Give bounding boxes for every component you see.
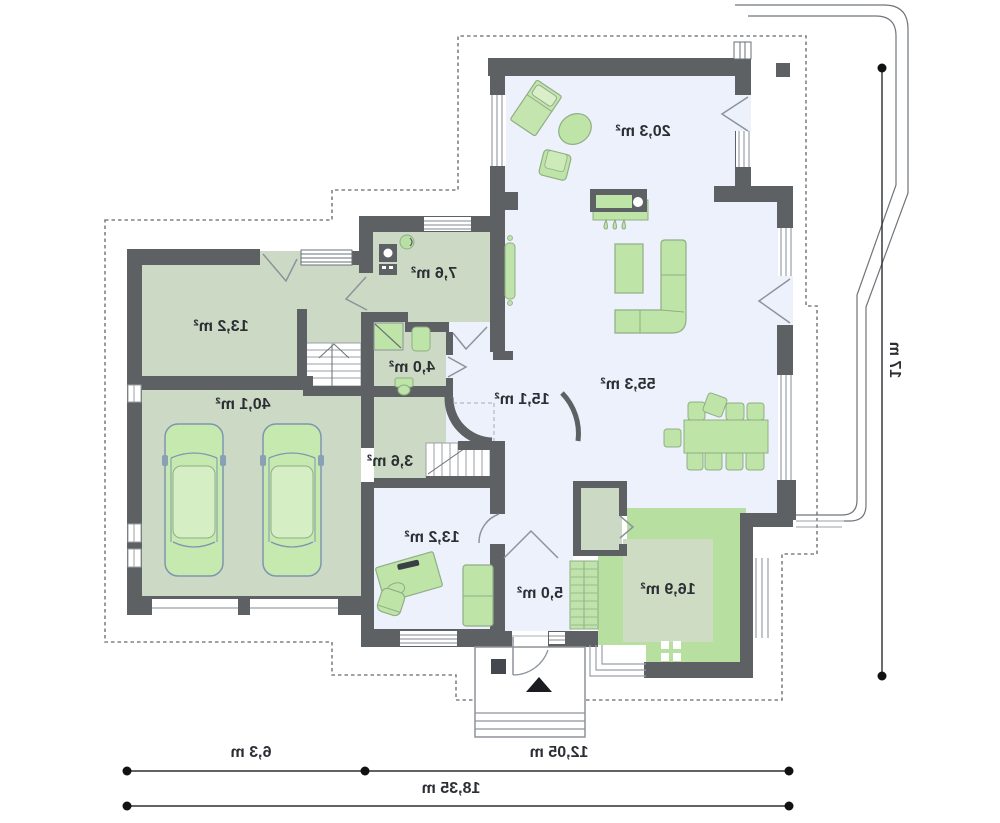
svg-text:13,2 m²: 13,2 m²: [404, 529, 459, 546]
svg-text:3,6 m²: 3,6 m²: [367, 453, 413, 470]
svg-text:7,6 m²: 7,6 m²: [411, 265, 457, 282]
svg-text:12,05 m: 12,05 m: [530, 744, 589, 761]
svg-text:5,0 m²: 5,0 m²: [517, 585, 563, 602]
svg-text:18,35 m: 18,35 m: [422, 780, 481, 797]
svg-text:4,0 m²: 4,0 m²: [389, 359, 435, 376]
svg-text:40,1 m²: 40,1 m²: [215, 396, 270, 413]
svg-text:15,1 m²: 15,1 m²: [494, 391, 549, 408]
svg-text:17 m: 17 m: [886, 342, 903, 378]
svg-text:55,3 m²: 55,3 m²: [600, 376, 655, 393]
svg-text:20,3 m²: 20,3 m²: [615, 123, 670, 140]
svg-text:13,2 m²: 13,2 m²: [193, 318, 248, 335]
svg-text:6,3 m: 6,3 m: [231, 744, 272, 761]
svg-text:16,9 m²: 16,9 m²: [640, 581, 695, 598]
